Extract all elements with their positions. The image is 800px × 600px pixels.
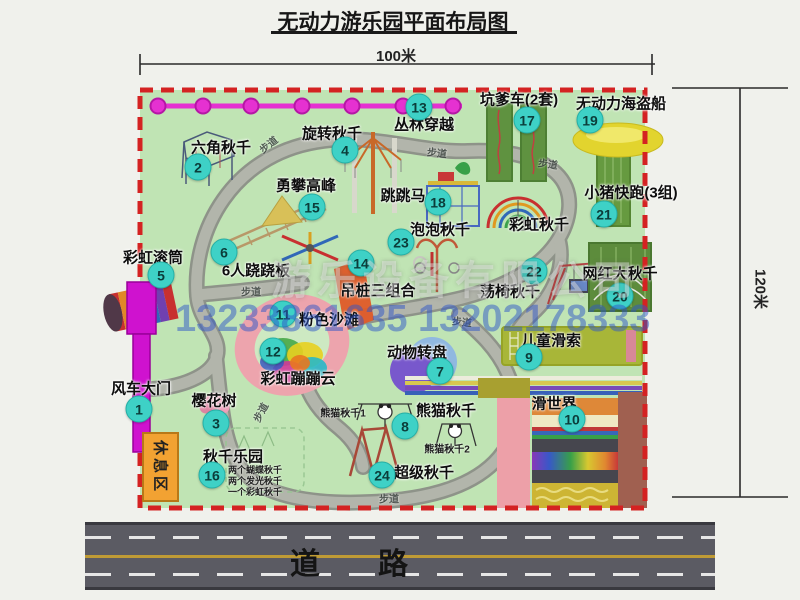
dimension-right-label: 120米 bbox=[751, 269, 772, 309]
panda-swing-1-note: 熊猫秋千1 bbox=[320, 405, 366, 420]
attraction-label-18: 跳跳马 bbox=[380, 185, 425, 206]
road-label: 道路 bbox=[290, 539, 466, 583]
walkway-label: 步道 bbox=[537, 154, 559, 172]
title-underline bbox=[271, 31, 517, 34]
jungle-chain-dot bbox=[243, 98, 260, 115]
attraction-marker-9: 9 bbox=[516, 344, 543, 371]
jungle-chain-dot bbox=[294, 98, 311, 115]
attraction-marker-12: 12 bbox=[260, 338, 287, 365]
attraction-label-12: 彩虹蹦蹦云 bbox=[260, 368, 335, 389]
attraction-label-17: 坑爹车(2套) bbox=[480, 89, 558, 110]
walkway-label: 步道 bbox=[426, 143, 447, 160]
attraction-marker-1: 1 bbox=[126, 396, 153, 423]
attraction-marker-2: 2 bbox=[185, 154, 212, 181]
rest-area: 休息区 bbox=[142, 432, 179, 502]
attraction-marker-5: 5 bbox=[148, 262, 175, 289]
panda-swing-2-note: 熊猫秋千2 bbox=[424, 441, 470, 456]
attraction-marker-6: 6 bbox=[211, 239, 238, 266]
attraction-marker-7: 7 bbox=[427, 358, 454, 385]
attraction-label-21: 小猪快跑(3组) bbox=[584, 182, 677, 203]
attraction-label-8: 熊猫秋千 bbox=[416, 400, 476, 421]
attraction-marker-15: 15 bbox=[299, 194, 326, 221]
attraction-marker-4: 4 bbox=[332, 137, 359, 164]
park-plan-poster: 无动力游乐园平面布局图 100米 120米 bbox=[0, 0, 800, 600]
attraction-marker-16: 16 bbox=[199, 462, 226, 489]
jungle-chain-dot bbox=[195, 98, 212, 115]
attraction-marker-3: 3 bbox=[203, 410, 230, 437]
walkway-label: 步道 bbox=[379, 491, 399, 506]
rest-area-label: 休息区 bbox=[150, 440, 171, 494]
jungle-chain-dot bbox=[445, 98, 462, 115]
jungle-chain-dot bbox=[150, 98, 167, 115]
rainbow-swing-area-label: 彩虹秋千 bbox=[509, 214, 569, 235]
attraction-label-15: 勇攀高峰 bbox=[276, 175, 336, 196]
attraction-marker-18: 18 bbox=[425, 189, 452, 216]
attraction-marker-19: 19 bbox=[577, 107, 604, 134]
attraction-marker-8: 8 bbox=[392, 413, 419, 440]
attraction-marker-13: 13 bbox=[406, 94, 433, 121]
attraction-label-23: 泡泡秋千 bbox=[410, 219, 470, 240]
attraction-marker-10: 10 bbox=[559, 406, 586, 433]
jungle-chain-dot bbox=[344, 98, 361, 115]
attraction-marker-17: 17 bbox=[514, 107, 541, 134]
swing-paradise-note-3: 一个彩虹秋千 bbox=[228, 485, 282, 498]
dimension-top-label: 100米 bbox=[376, 45, 416, 66]
attraction-marker-24: 24 bbox=[369, 462, 396, 489]
attraction-label-3: 樱花树 bbox=[191, 390, 236, 411]
walkway-label: 步道 bbox=[241, 284, 261, 299]
watermark-phone: 13233861635 13202178333 bbox=[175, 298, 651, 341]
attraction-marker-21: 21 bbox=[591, 201, 618, 228]
attraction-label-24: 超级秋千 bbox=[394, 462, 454, 483]
